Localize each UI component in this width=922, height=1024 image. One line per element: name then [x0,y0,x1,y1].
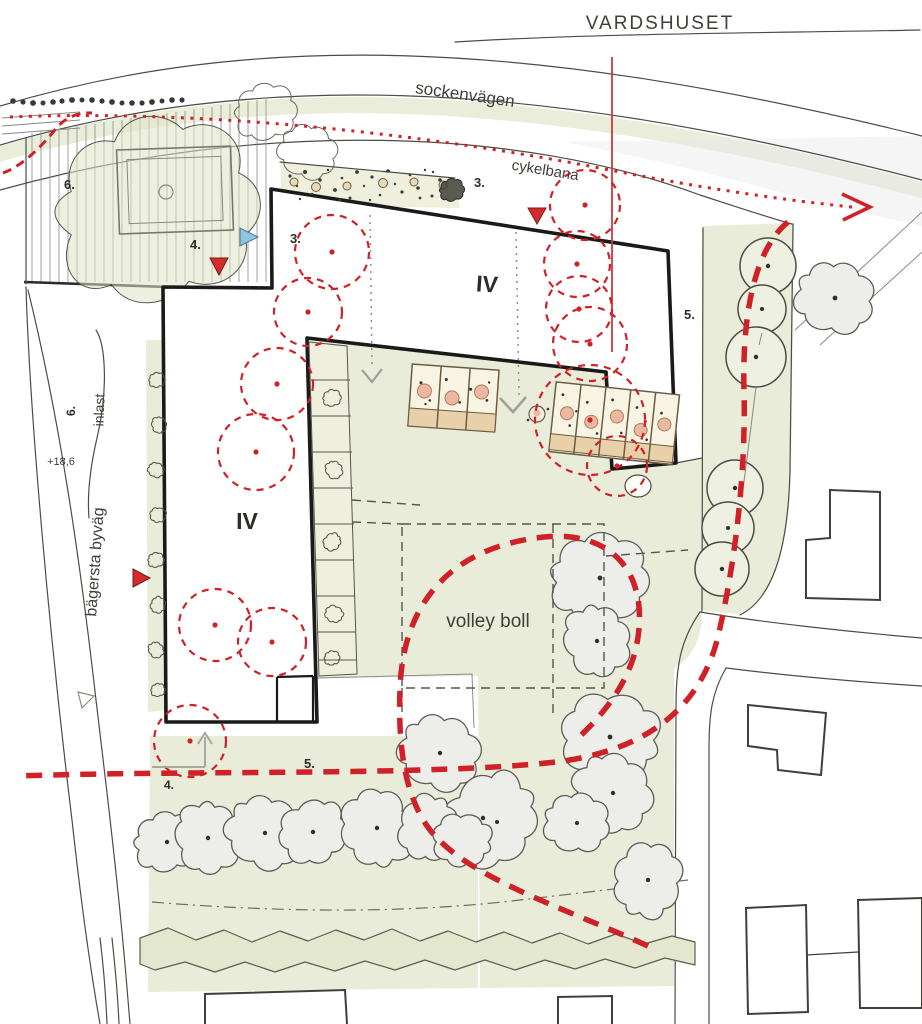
annotation-3-wing: 3. [290,231,301,246]
site-plan: VARDSHUSET sockenvägen cykelbana bägerst… [0,0,922,1024]
small-bush [625,475,651,497]
annotation-5-right: 5. [684,307,695,322]
page-title: VARDSHUSET [586,13,734,34]
annotation-4-hatch: 4. [190,237,201,252]
road-label-bagersta-byvag: bägersta byväg [83,507,108,617]
loading-label: inlast [90,393,107,426]
annotation-5-bottom: 5. [304,756,315,771]
annotation-6-hatch: 6. [64,177,75,192]
floors-west-wing: IV [236,508,258,534]
open-triangle-marker [78,692,94,708]
annotation-4-bottom: 4. [164,778,174,792]
spot-height-label: +18,6 [47,456,75,468]
volleyball-label: volley boll [446,611,529,632]
dark-hedge-blob [439,179,464,202]
floors-north-wing: IV [475,270,499,297]
boundary-post-dots [10,97,184,106]
annotation-3-strip: 3. [474,175,485,190]
annotation-6-road: 6. [64,406,78,416]
